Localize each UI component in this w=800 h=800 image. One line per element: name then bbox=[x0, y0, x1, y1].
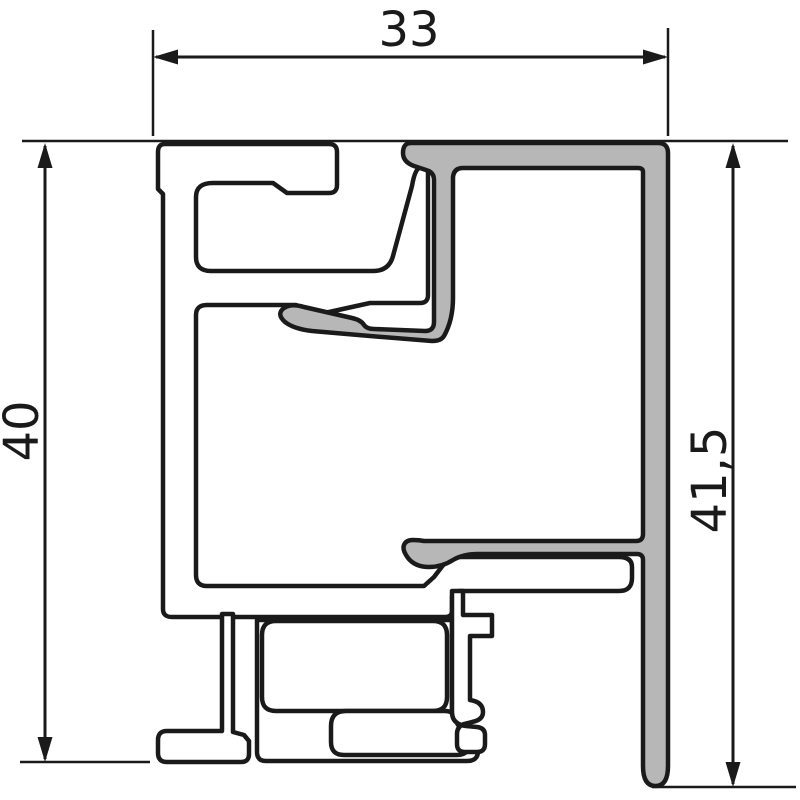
arrow-right-icon bbox=[643, 50, 668, 65]
frame-profile bbox=[158, 144, 632, 762]
arrow-down-icon bbox=[38, 737, 53, 762]
arrow-up-icon bbox=[726, 143, 741, 168]
arrow-left-icon bbox=[153, 50, 178, 65]
frame-profile-cavity-lower bbox=[331, 711, 470, 755]
arrow-down-icon bbox=[726, 762, 741, 787]
dim-width-label: 33 bbox=[378, 2, 439, 58]
profile-cross-section-drawing: 33 40 41,5 bbox=[0, 0, 800, 800]
frame-profile-leg bbox=[452, 591, 492, 752]
dim-height-left-label: 40 bbox=[0, 400, 50, 461]
dimension-labels: 33 40 41,5 bbox=[0, 2, 738, 533]
arrow-up-icon bbox=[38, 143, 53, 168]
frame-profile-left-foot bbox=[158, 614, 249, 762]
dim-height-right-label: 41,5 bbox=[682, 427, 738, 534]
technical-drawing-page: 33 40 41,5 bbox=[0, 0, 800, 800]
frame-profile-cavity-upper bbox=[262, 621, 447, 711]
